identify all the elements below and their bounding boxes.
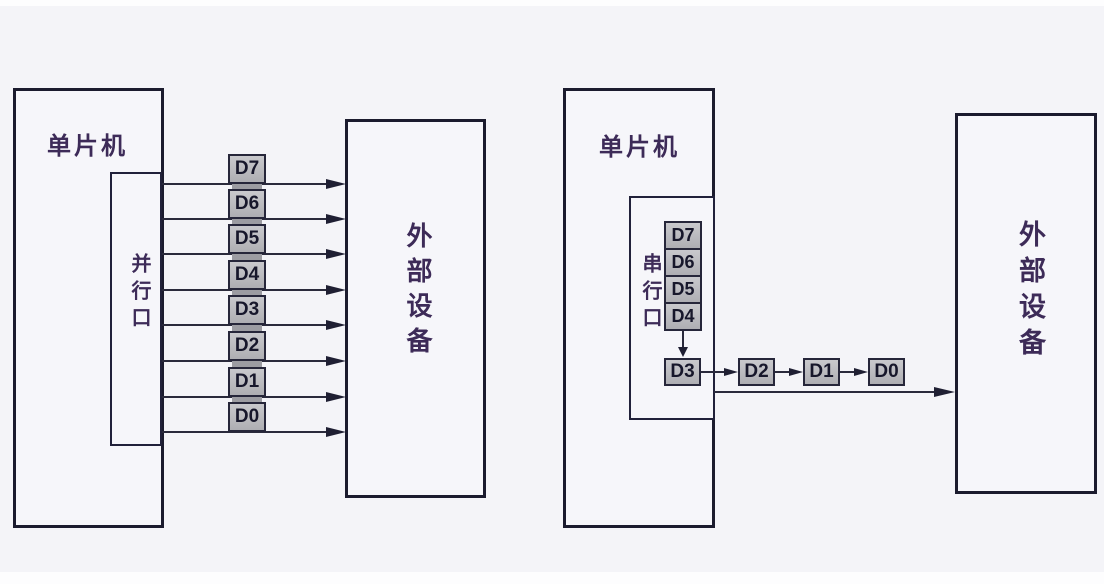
serial-line [714,391,936,393]
bit-label-box: D0 [228,402,266,432]
bottom-margin [0,572,1104,584]
serial-mcu-label: 单片机 [582,127,697,162]
arrow-right-icon [934,387,955,397]
transmitted-bit-box: D1 [803,358,840,386]
arrow-right-icon [326,356,346,366]
arrow-right-icon [724,368,738,376]
parallel-port-label: 并行口 [125,253,154,334]
parallel-mcu-label: 单片机 [30,126,145,161]
bit-label-box: D2 [228,331,266,361]
bit-label-box: D7 [228,154,266,184]
serial-port-label: 串行口 [636,253,665,334]
arrow-right-icon [326,249,346,259]
current-bit-box: D3 [664,358,701,386]
arrow-right-icon [326,179,346,189]
bit-label-box: D4 [228,260,266,290]
parallel-device-label: 外部设备 [400,222,437,362]
arrow-right-icon [326,392,346,402]
transmitted-bit-box: D0 [868,358,905,386]
arrow-right-icon [326,214,346,224]
bit-label-box: D3 [228,295,266,325]
chain-wire [701,371,726,373]
register-cell: D5 [664,275,702,304]
register-cell: D7 [664,221,702,250]
arrow-right-icon [326,285,346,295]
arrow-right-icon [326,427,346,437]
arrow-right-icon [326,320,346,330]
register-cell: D4 [664,302,702,331]
arrow-right-icon [854,368,868,376]
shift-register-stack: D7 D6 D5 D4 [664,221,702,331]
top-margin [0,0,1104,6]
bit-label-box: D1 [228,367,266,397]
arrow-right-icon [789,368,803,376]
parallel-vs-serial-diagram: 单片机 并行口 D7 D6 D5 D4 D3 D2 D1 D0 外部设备 单片机… [0,0,1104,584]
bit-label-box: D5 [228,224,266,254]
serial-device-label: 外部设备 [1011,220,1050,364]
transmitted-bit-box: D2 [738,358,775,386]
bit-label-box: D6 [228,189,266,219]
register-cell: D6 [664,248,702,277]
arrow-down-icon [678,347,688,357]
